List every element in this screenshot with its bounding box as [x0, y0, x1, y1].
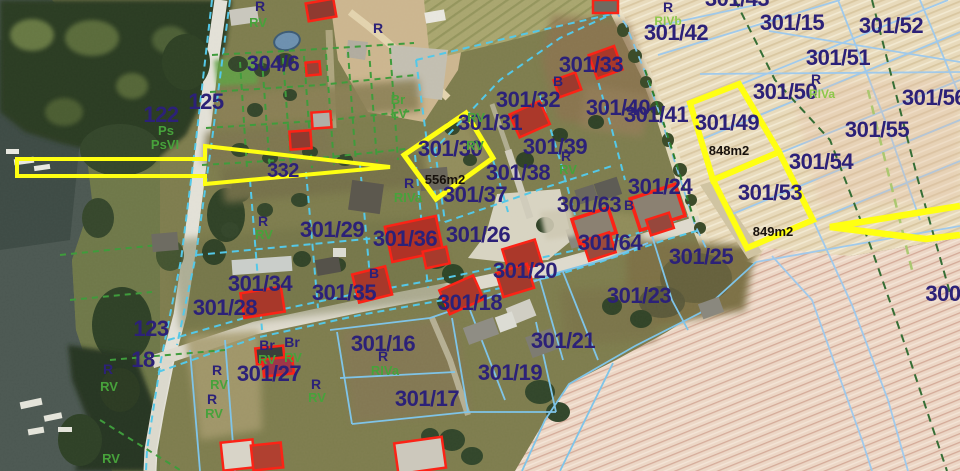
svg-text:301/41: 301/41 — [624, 102, 689, 127]
svg-text:RV: RV — [205, 406, 223, 421]
svg-text:301/25: 301/25 — [669, 244, 734, 269]
svg-text:332: 332 — [267, 160, 299, 182]
svg-text:301/54: 301/54 — [789, 149, 855, 174]
svg-text:18: 18 — [131, 347, 155, 372]
svg-text:R: R — [212, 362, 222, 378]
svg-text:301/56: 301/56 — [902, 85, 960, 110]
svg-text:301/53: 301/53 — [738, 180, 803, 205]
svg-text:300: 300 — [925, 281, 960, 306]
svg-text:301/19: 301/19 — [478, 360, 543, 385]
svg-text:RV: RV — [249, 15, 267, 30]
svg-text:301/36: 301/36 — [373, 226, 438, 251]
svg-text:301/28: 301/28 — [193, 295, 258, 320]
svg-text:301/20: 301/20 — [493, 258, 558, 283]
svg-text:RV: RV — [308, 390, 326, 405]
svg-text:RIVa: RIVa — [809, 87, 835, 101]
svg-text:301/39: 301/39 — [523, 134, 588, 159]
svg-text:RV: RV — [102, 451, 120, 466]
svg-text:301/29: 301/29 — [300, 217, 365, 242]
svg-text:R: R — [811, 71, 821, 87]
svg-text:B: B — [369, 265, 379, 281]
svg-text:RV: RV — [210, 377, 228, 392]
svg-text:R: R — [207, 391, 217, 407]
svg-text:R: R — [373, 20, 383, 36]
svg-text:B: B — [624, 197, 634, 213]
svg-text:PsVI: PsVI — [151, 137, 179, 152]
svg-text:R: R — [378, 348, 388, 364]
svg-text:RV: RV — [467, 110, 485, 125]
svg-text:301/21: 301/21 — [531, 328, 596, 353]
svg-text:RV: RV — [466, 138, 484, 153]
svg-text:ŁV: ŁV — [391, 106, 408, 121]
svg-text:301/18: 301/18 — [438, 290, 503, 315]
svg-text:301/63: 301/63 — [557, 192, 622, 217]
svg-text:R: R — [663, 0, 673, 15]
svg-text:RV: RV — [284, 350, 302, 365]
svg-text:301/24: 301/24 — [628, 174, 694, 199]
svg-text:RIVb: RIVb — [654, 14, 681, 28]
svg-text:301/32: 301/32 — [496, 87, 561, 112]
svg-text:125: 125 — [188, 89, 223, 114]
svg-text:301/55: 301/55 — [845, 117, 910, 142]
svg-text:301/34: 301/34 — [228, 271, 294, 296]
svg-text:RV: RV — [559, 162, 577, 177]
svg-text:301/64: 301/64 — [578, 230, 644, 255]
svg-text:RV: RV — [100, 379, 118, 394]
svg-text:123: 123 — [133, 316, 168, 341]
svg-text:301/52: 301/52 — [859, 13, 924, 38]
svg-text:301/49: 301/49 — [695, 110, 760, 135]
svg-text:RV: RV — [255, 227, 273, 242]
svg-text:Br: Br — [259, 337, 275, 353]
svg-text:Ps: Ps — [158, 123, 174, 138]
svg-text:RIVa: RIVa — [371, 363, 400, 378]
svg-text:RIVa: RIVa — [394, 190, 423, 205]
svg-text:304/6: 304/6 — [247, 51, 300, 76]
svg-text:301/51: 301/51 — [806, 45, 871, 70]
svg-text:B: B — [553, 73, 563, 89]
svg-text:301/50: 301/50 — [753, 79, 818, 104]
svg-text:301/35: 301/35 — [312, 280, 377, 305]
svg-text:301/15: 301/15 — [760, 10, 825, 35]
svg-text:R: R — [404, 175, 414, 191]
svg-text:301/33: 301/33 — [559, 52, 624, 77]
svg-text:Br: Br — [284, 334, 300, 350]
svg-text:849m2: 849m2 — [753, 224, 793, 239]
svg-text:RV: RV — [258, 352, 276, 367]
svg-text:Br: Br — [391, 92, 405, 107]
svg-text:301/23: 301/23 — [607, 283, 672, 308]
svg-text:301/26: 301/26 — [446, 222, 511, 247]
svg-text:301/17: 301/17 — [395, 386, 460, 411]
svg-text:556m2: 556m2 — [425, 172, 465, 187]
svg-text:848m2: 848m2 — [709, 143, 749, 158]
svg-text:R: R — [255, 0, 265, 14]
svg-text:R: R — [103, 361, 113, 377]
